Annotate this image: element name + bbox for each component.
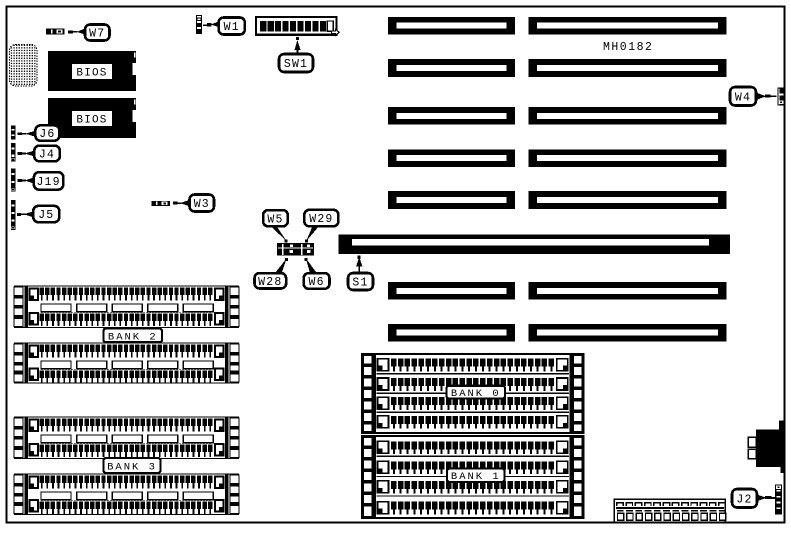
svg-text:W7: W7	[89, 28, 105, 41]
svg-text:SW1: SW1	[284, 58, 308, 71]
svg-text:W6: W6	[308, 276, 324, 289]
svg-text:J5: J5	[38, 209, 54, 222]
svg-text:BIOS: BIOS	[76, 68, 107, 80]
svg-text:W29: W29	[309, 213, 333, 226]
svg-text:J2: J2	[736, 493, 752, 506]
svg-text:J4: J4	[39, 149, 55, 162]
svg-text:W4: W4	[735, 91, 751, 104]
svg-text:BANK 2: BANK 2	[108, 331, 158, 343]
svg-text:BANK 3: BANK 3	[107, 462, 157, 474]
svg-text:BANK 1: BANK 1	[451, 471, 501, 483]
svg-text:W5: W5	[267, 213, 283, 226]
svg-text:J6: J6	[39, 128, 55, 141]
svg-text:W3: W3	[194, 198, 210, 211]
svg-text:J19: J19	[36, 176, 60, 189]
svg-text:MH0182: MH0182	[603, 41, 653, 54]
svg-text:W1: W1	[224, 21, 240, 34]
svg-text:W28: W28	[258, 276, 282, 289]
svg-text:BIOS: BIOS	[76, 115, 107, 127]
svg-text:S1: S1	[352, 277, 368, 290]
svg-text:BANK 0: BANK 0	[451, 388, 501, 400]
